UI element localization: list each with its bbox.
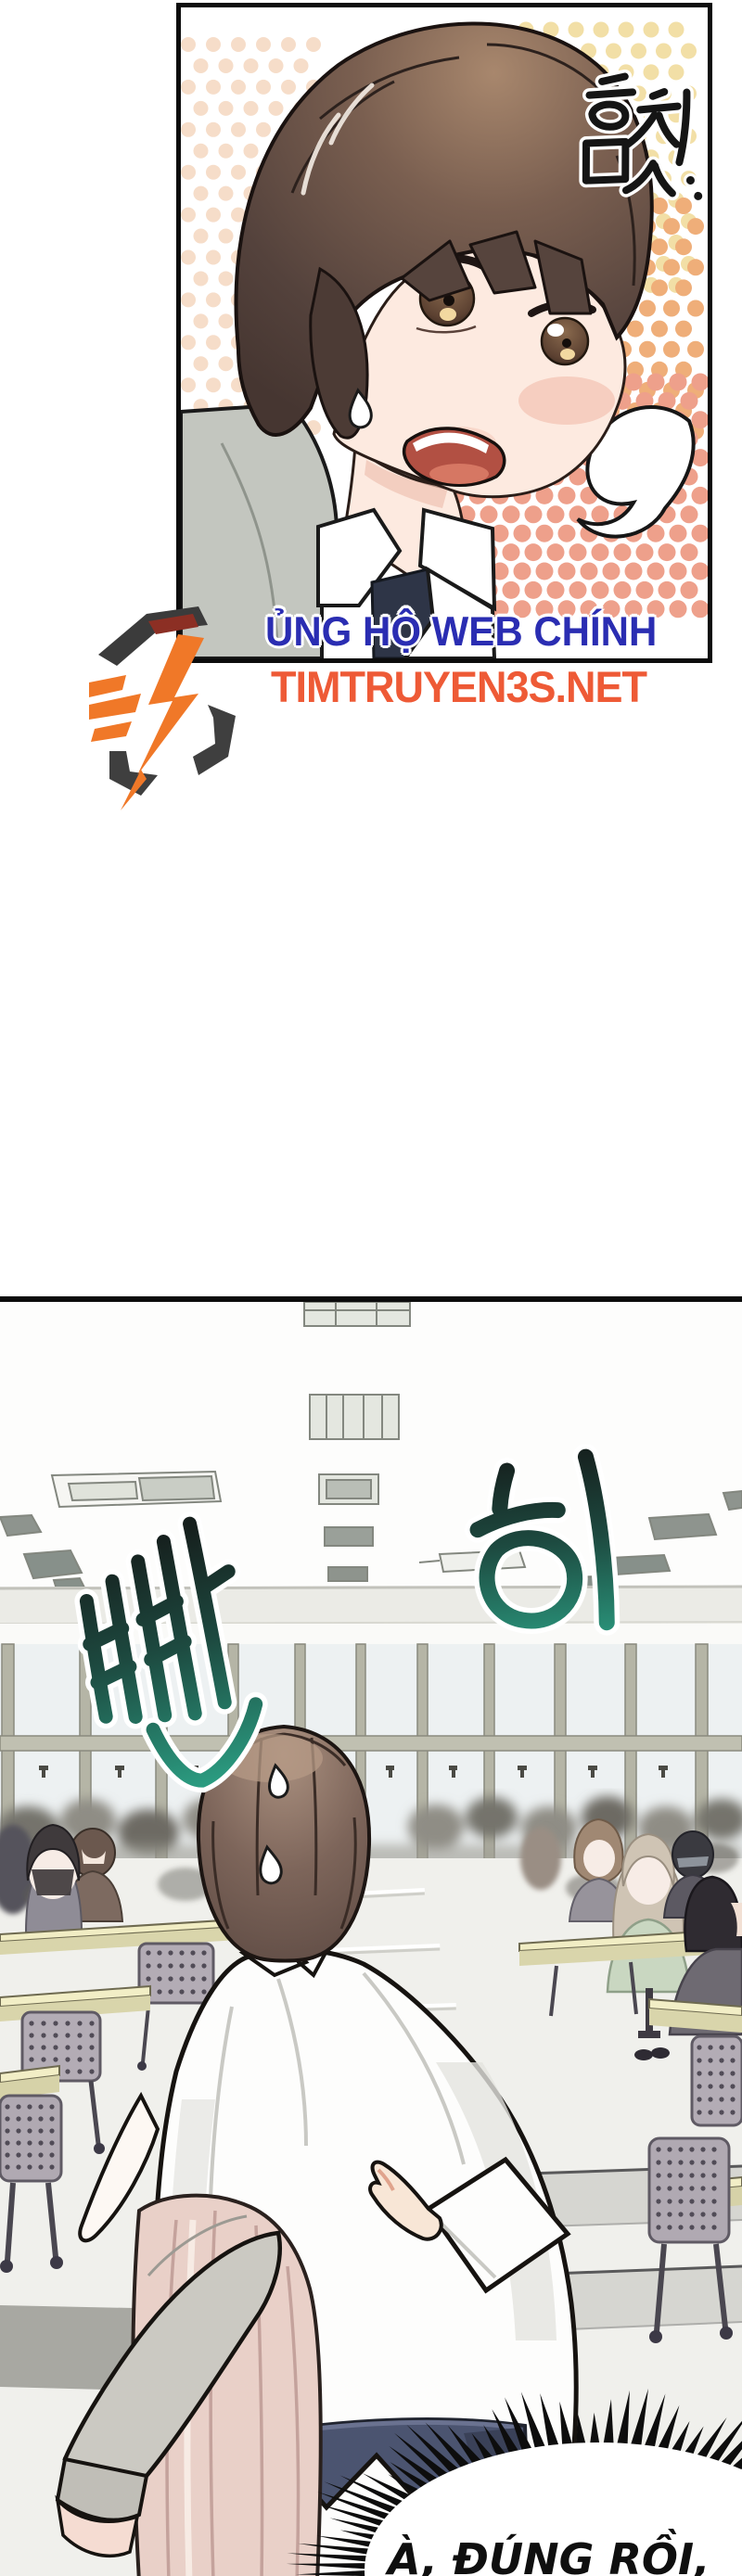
student-blackhair-girl <box>26 1825 82 1932</box>
watermark-line1: ỦNG HỘ WEB CHÍNH <box>265 611 655 653</box>
panel-classroom: À, ĐÚNG RỒI, <box>0 1296 742 2576</box>
panel-top-artwork <box>181 7 708 658</box>
tongue <box>429 464 489 484</box>
timtruyen3s-logo <box>89 593 258 814</box>
watermark-logo <box>89 593 258 814</box>
speech-bubble-text: À, ĐÚNG RỒI, <box>385 2529 710 2576</box>
blush <box>518 376 615 425</box>
classroom-artwork: À, ĐÚNG RỒI, <box>0 1302 742 2576</box>
comic-page: ỦNG HỘ WEB CHÍNH TIMTRUYEN3S.NET <box>0 0 742 2576</box>
watermark-line2: TIMTRUYEN3S.NET <box>271 665 660 708</box>
panel-top <box>176 3 712 663</box>
window-transom <box>0 1736 742 1751</box>
